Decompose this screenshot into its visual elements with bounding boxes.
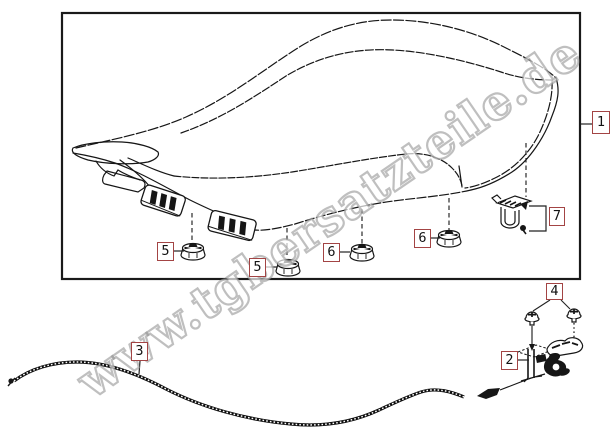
diagram-frame [62,13,580,279]
flange-nut-5-left [181,243,205,260]
seat-tab-bracket-front [140,184,186,217]
bolt-4-left [525,312,539,325]
leader-dashed-lines [192,143,526,257]
hinge-bracket-7 [492,195,531,234]
callout-1: 1 [592,111,610,134]
flange-nut-6-right [437,230,461,247]
release-cable-3 [8,362,531,425]
callout-5-left: 5 [157,242,174,261]
callout-6-left: 6 [323,243,340,262]
callout-7-leader [529,206,546,231]
bolt-4-right [567,309,581,322]
callout-2: 2 [501,351,518,370]
callout-5-right: 5 [249,258,266,277]
parts-diagram-page: www.tgbersatzteile.de 1 2 3 4 5 5 6 6 7 [0,0,616,434]
callout-7: 7 [549,207,565,226]
callout-3: 3 [131,342,148,361]
callout-6-right: 6 [414,229,431,248]
seat-tab-bracket-mid [207,210,257,242]
callout-4: 4 [546,283,563,300]
flange-nut-6-left [350,244,374,261]
seat-diagram-artwork [0,0,616,434]
flange-nut-5-right [276,259,300,276]
callout-4-leader [533,300,570,311]
